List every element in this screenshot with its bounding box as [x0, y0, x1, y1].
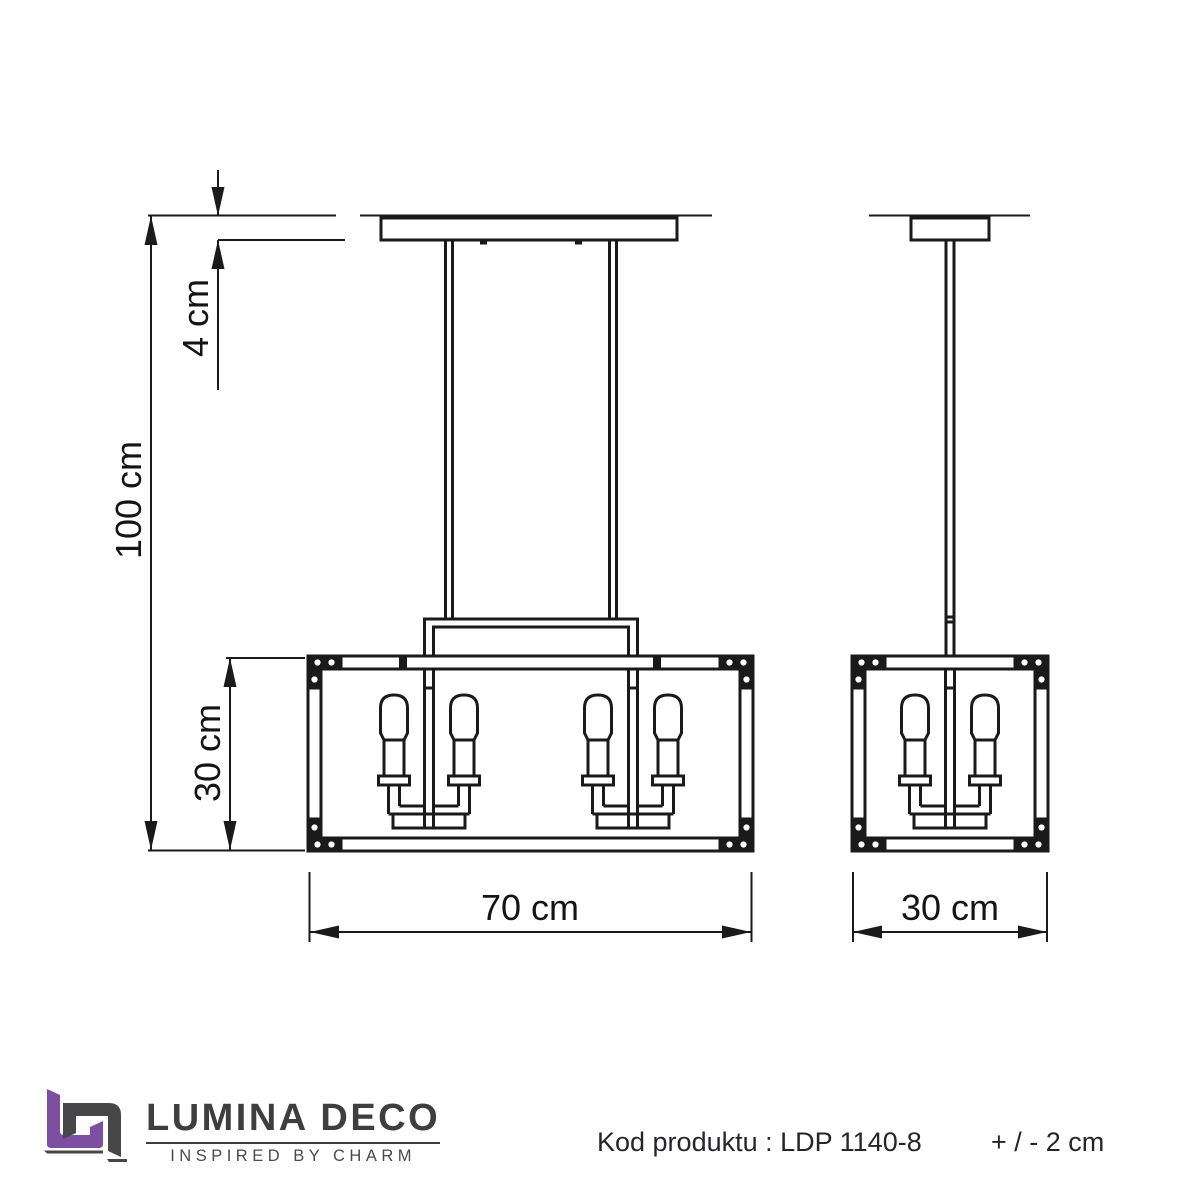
dimension-shade-height: 30 cm: [187, 658, 237, 850]
brand-tagline: INSPIRED BY CHARM: [146, 1148, 440, 1165]
brand-name: LUMINA DECO: [146, 1099, 440, 1137]
logo-text: LUMINA DECO INSPIRED BY CHARM: [146, 1084, 440, 1166]
dimension-canopy-height: 4 cm: [175, 170, 225, 390]
lamp-side-view: [852, 218, 1048, 851]
label-overall-height: 100 cm: [108, 441, 149, 559]
tolerance-note: + / - 2 cm: [991, 1127, 1104, 1158]
label-shade-depth: 30 cm: [901, 887, 999, 928]
extension-lines: [148, 216, 1047, 943]
label-shade-width: 70 cm: [481, 887, 579, 928]
dimension-overall-height: 100 cm: [108, 216, 158, 850]
label-canopy-height: 4 cm: [175, 279, 216, 357]
lamp-front-view: [308, 218, 753, 851]
label-shade-height: 30 cm: [187, 704, 228, 802]
lumina-deco-logo: LUMINA DECO INSPIRED BY CHARM: [38, 1084, 440, 1166]
lamp-dimension-drawing: 100 cm 4 cm 30 cm 70 cm 30 cm: [0, 0, 1200, 1075]
dimension-shade-depth: 30 cm: [853, 887, 1047, 939]
dimension-shade-width: 70 cm: [310, 887, 751, 939]
logo-divider: INSPIRED BY CHARM: [146, 1142, 440, 1165]
footer: LUMINA DECO INSPIRED BY CHARM Kod produk…: [0, 1080, 1200, 1200]
technical-drawing-page: 100 cm 4 cm 30 cm 70 cm 30 cm: [0, 0, 1200, 1200]
lumina-deco-logo-icon: [38, 1084, 130, 1166]
product-code-label: Kod produktu : LDP 1140-8: [597, 1127, 922, 1158]
